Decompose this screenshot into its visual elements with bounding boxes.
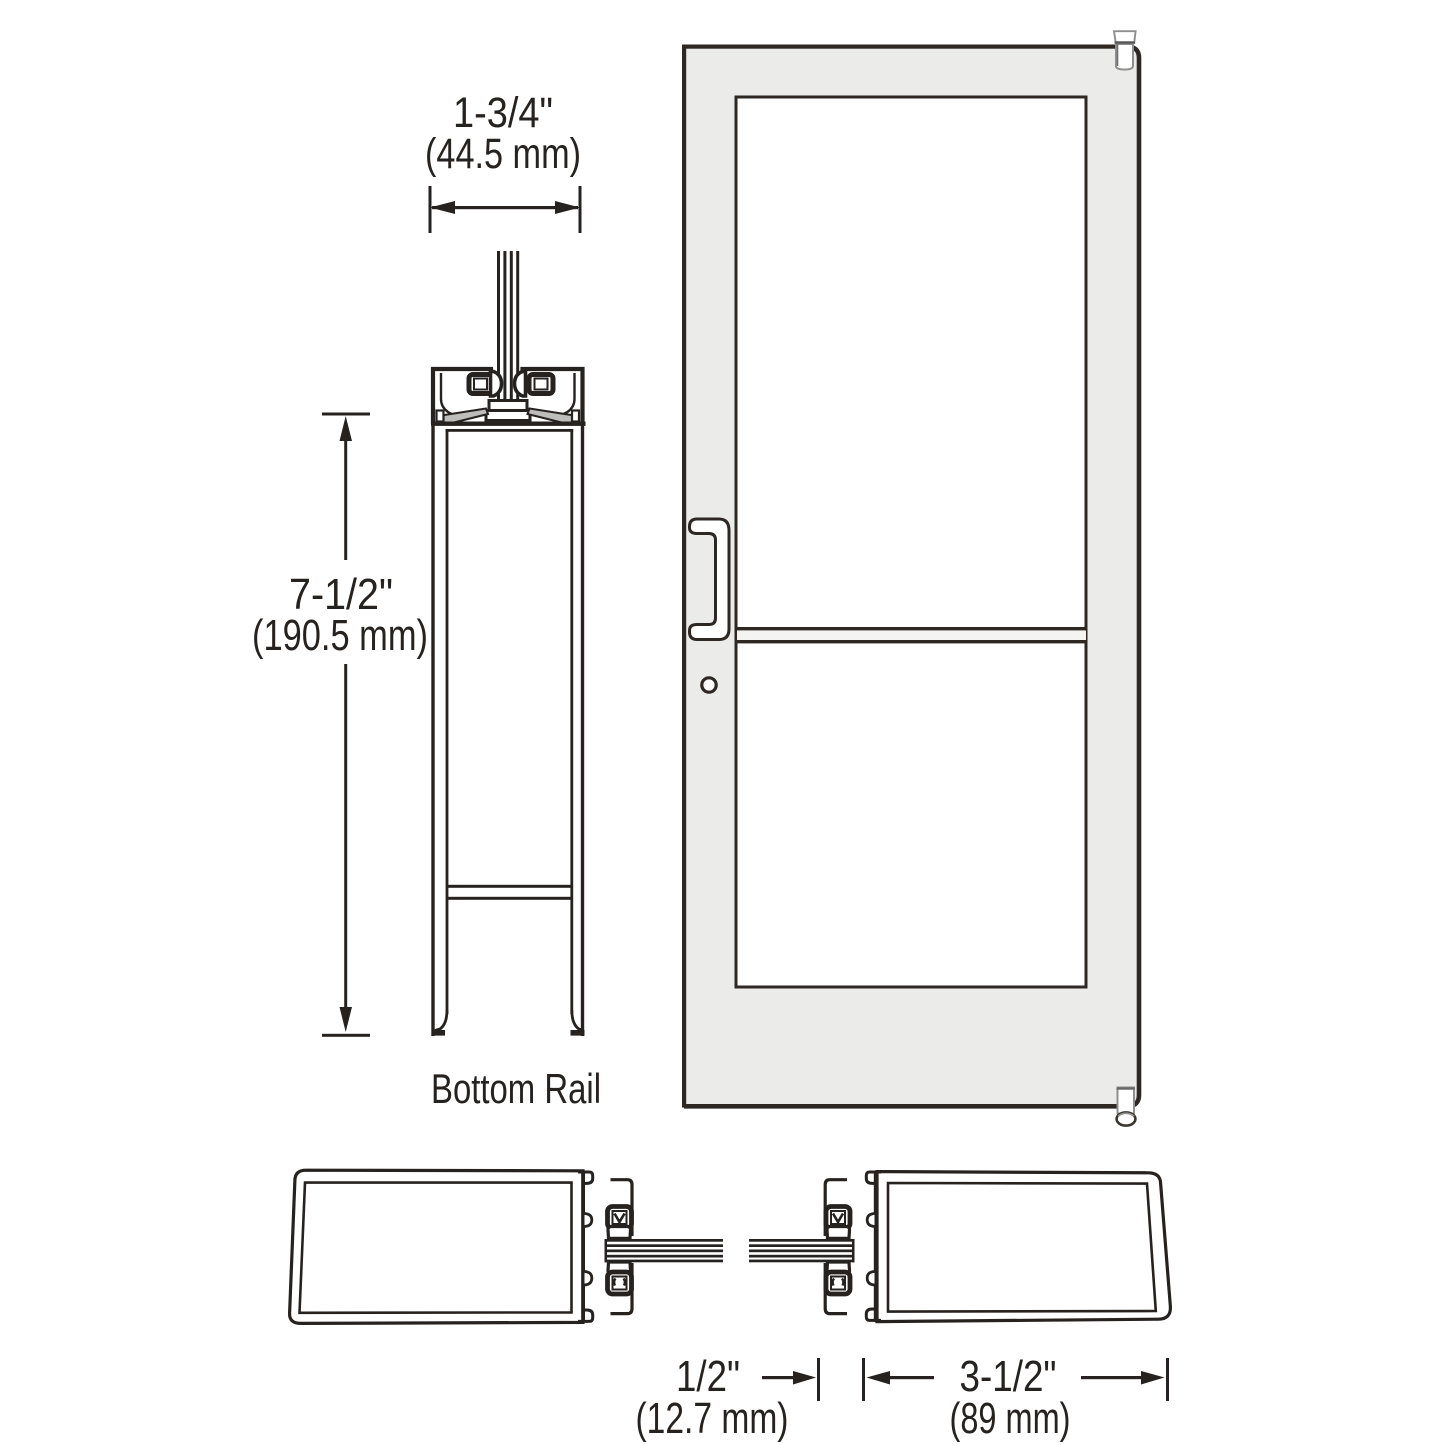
svg-text:(89 mm): (89 mm) [950,1394,1071,1443]
svg-text:(12.7 mm): (12.7 mm) [636,1394,789,1443]
svg-text:Bottom Rail: Bottom Rail [431,1065,601,1112]
svg-text:(190.5 mm): (190.5 mm) [252,611,428,660]
svg-text:(44.5 mm): (44.5 mm) [425,130,581,178]
